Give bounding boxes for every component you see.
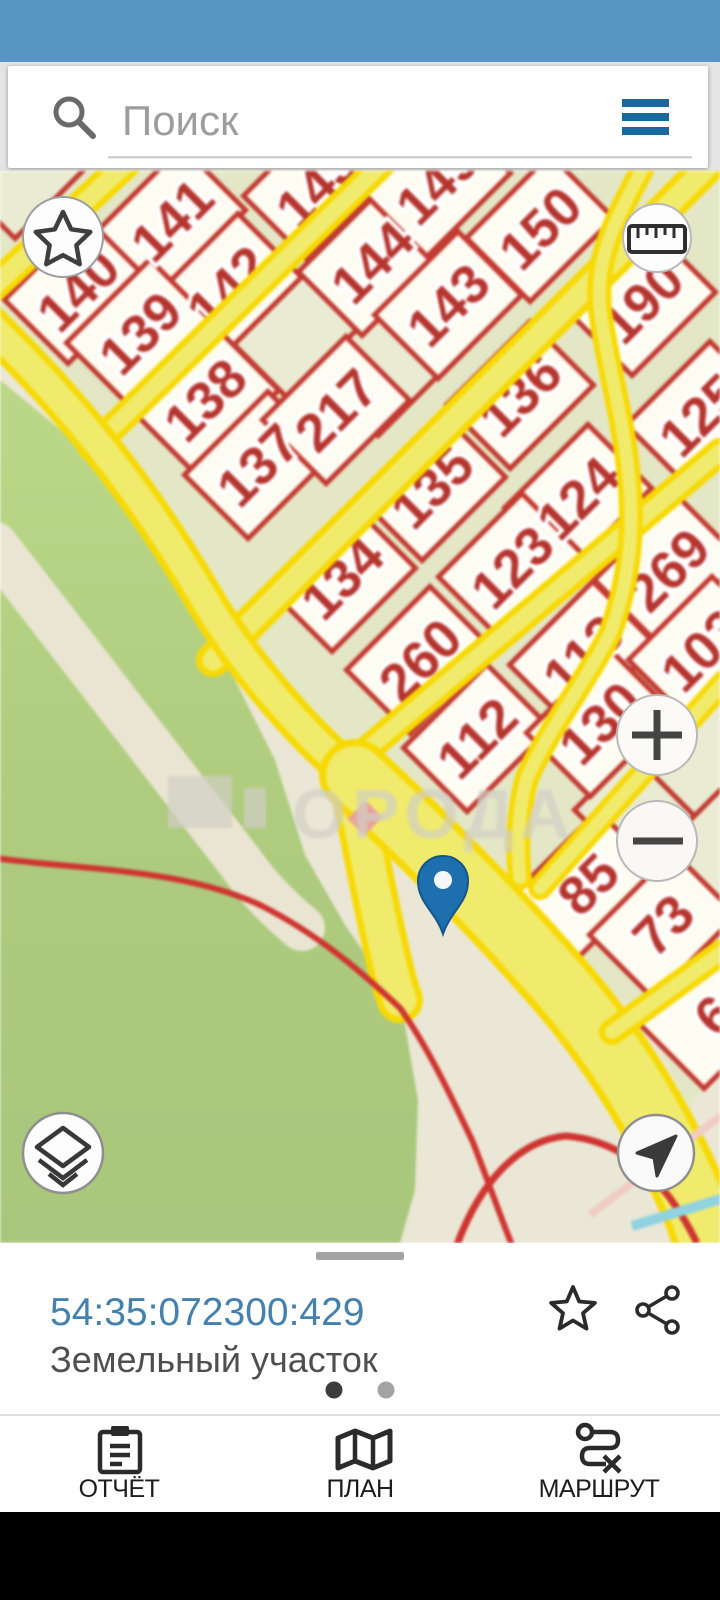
svg-text:ПЛАН: ПЛАН: [326, 1475, 393, 1503]
svg-text:ОТЧЁТ: ОТЧЁТ: [79, 1475, 160, 1503]
svg-text:Поиск: Поиск: [122, 97, 239, 144]
svg-text:Земельный участок: Земельный участок: [50, 1339, 378, 1380]
svg-text:МАРШРУТ: МАРШРУТ: [539, 1475, 660, 1503]
svg-text:54:35:072300:429: 54:35:072300:429: [50, 1291, 364, 1334]
